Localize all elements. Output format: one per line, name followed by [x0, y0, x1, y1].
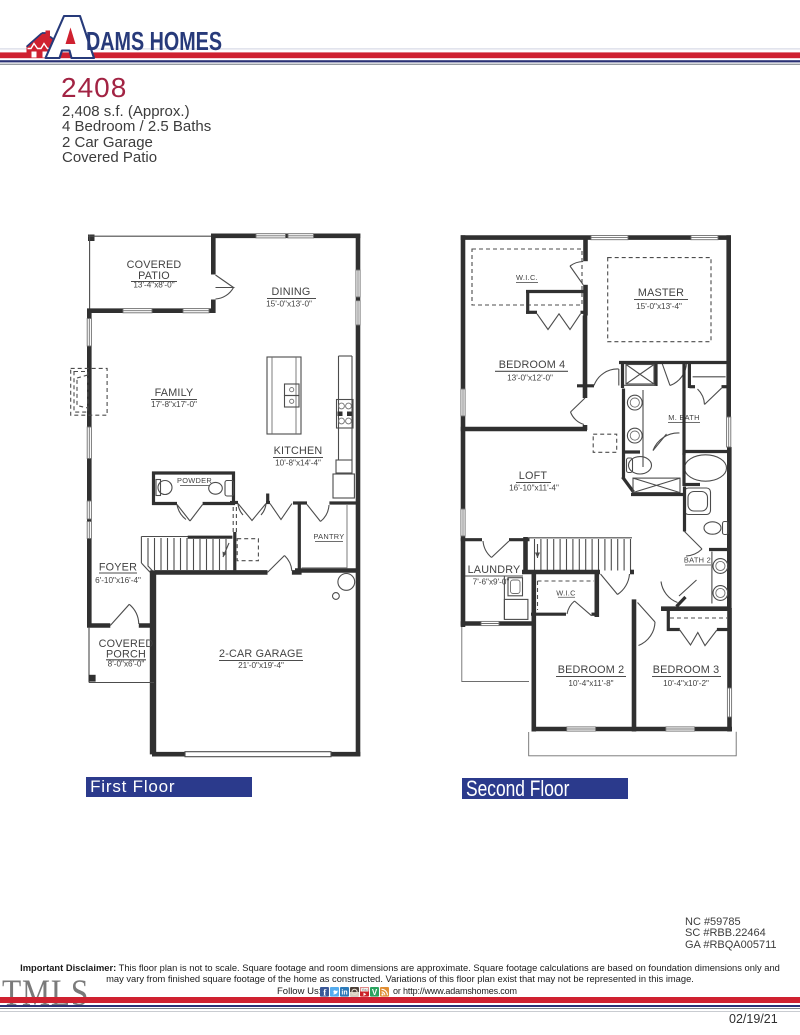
svg-text:W.I.C.: W.I.C. — [516, 273, 538, 282]
svg-text:LOFT: LOFT — [519, 470, 548, 482]
svg-text:BEDROOM 3: BEDROOM 3 — [653, 664, 720, 676]
svg-text:21'-0"x19'-4": 21'-0"x19'-4" — [238, 661, 284, 670]
svg-text:DINING: DINING — [272, 286, 311, 298]
svg-text:MASTER: MASTER — [638, 287, 684, 299]
svg-text:17'-8"x17'-0": 17'-8"x17'-0" — [151, 400, 197, 409]
svg-text:FOYER: FOYER — [99, 561, 137, 573]
svg-text:BEDROOM 2: BEDROOM 2 — [558, 664, 625, 676]
svg-text:15'-0"x13'-0": 15'-0"x13'-0" — [266, 300, 312, 309]
svg-text:BEDROOM 4: BEDROOM 4 — [499, 359, 566, 371]
svg-text:10'-8"x14'-4": 10'-8"x14'-4" — [275, 459, 321, 468]
svg-text:15'-0"x13'-4": 15'-0"x13'-4" — [636, 302, 682, 311]
svg-text:FAMILY: FAMILY — [155, 387, 194, 399]
svg-text:2-CAR GARAGE: 2-CAR GARAGE — [219, 648, 303, 660]
svg-text:6'-10"x16'-4": 6'-10"x16'-4" — [95, 576, 141, 585]
svg-text:13'-4"x8'-0": 13'-4"x8'-0" — [133, 281, 174, 290]
svg-text:10'-4"x11'-8": 10'-4"x11'-8" — [568, 679, 613, 688]
svg-text:8'-0"x6'-0": 8'-0"x6'-0" — [108, 659, 145, 668]
svg-text:13'-0"x12'-0": 13'-0"x12'-0" — [507, 374, 553, 383]
svg-text:10'-4"x10'-2": 10'-4"x10'-2" — [663, 679, 709, 688]
svg-text:KITCHEN: KITCHEN — [274, 445, 323, 457]
svg-text:POWDER: POWDER — [177, 476, 212, 485]
svg-text:BATH 2: BATH 2 — [684, 556, 711, 565]
svg-text:W.I.C: W.I.C — [556, 588, 576, 597]
svg-text:16'-10"x11'-4": 16'-10"x11'-4" — [509, 484, 559, 493]
svg-text:PANTRY: PANTRY — [313, 532, 344, 541]
svg-text:LAUNDRY: LAUNDRY — [468, 564, 521, 576]
